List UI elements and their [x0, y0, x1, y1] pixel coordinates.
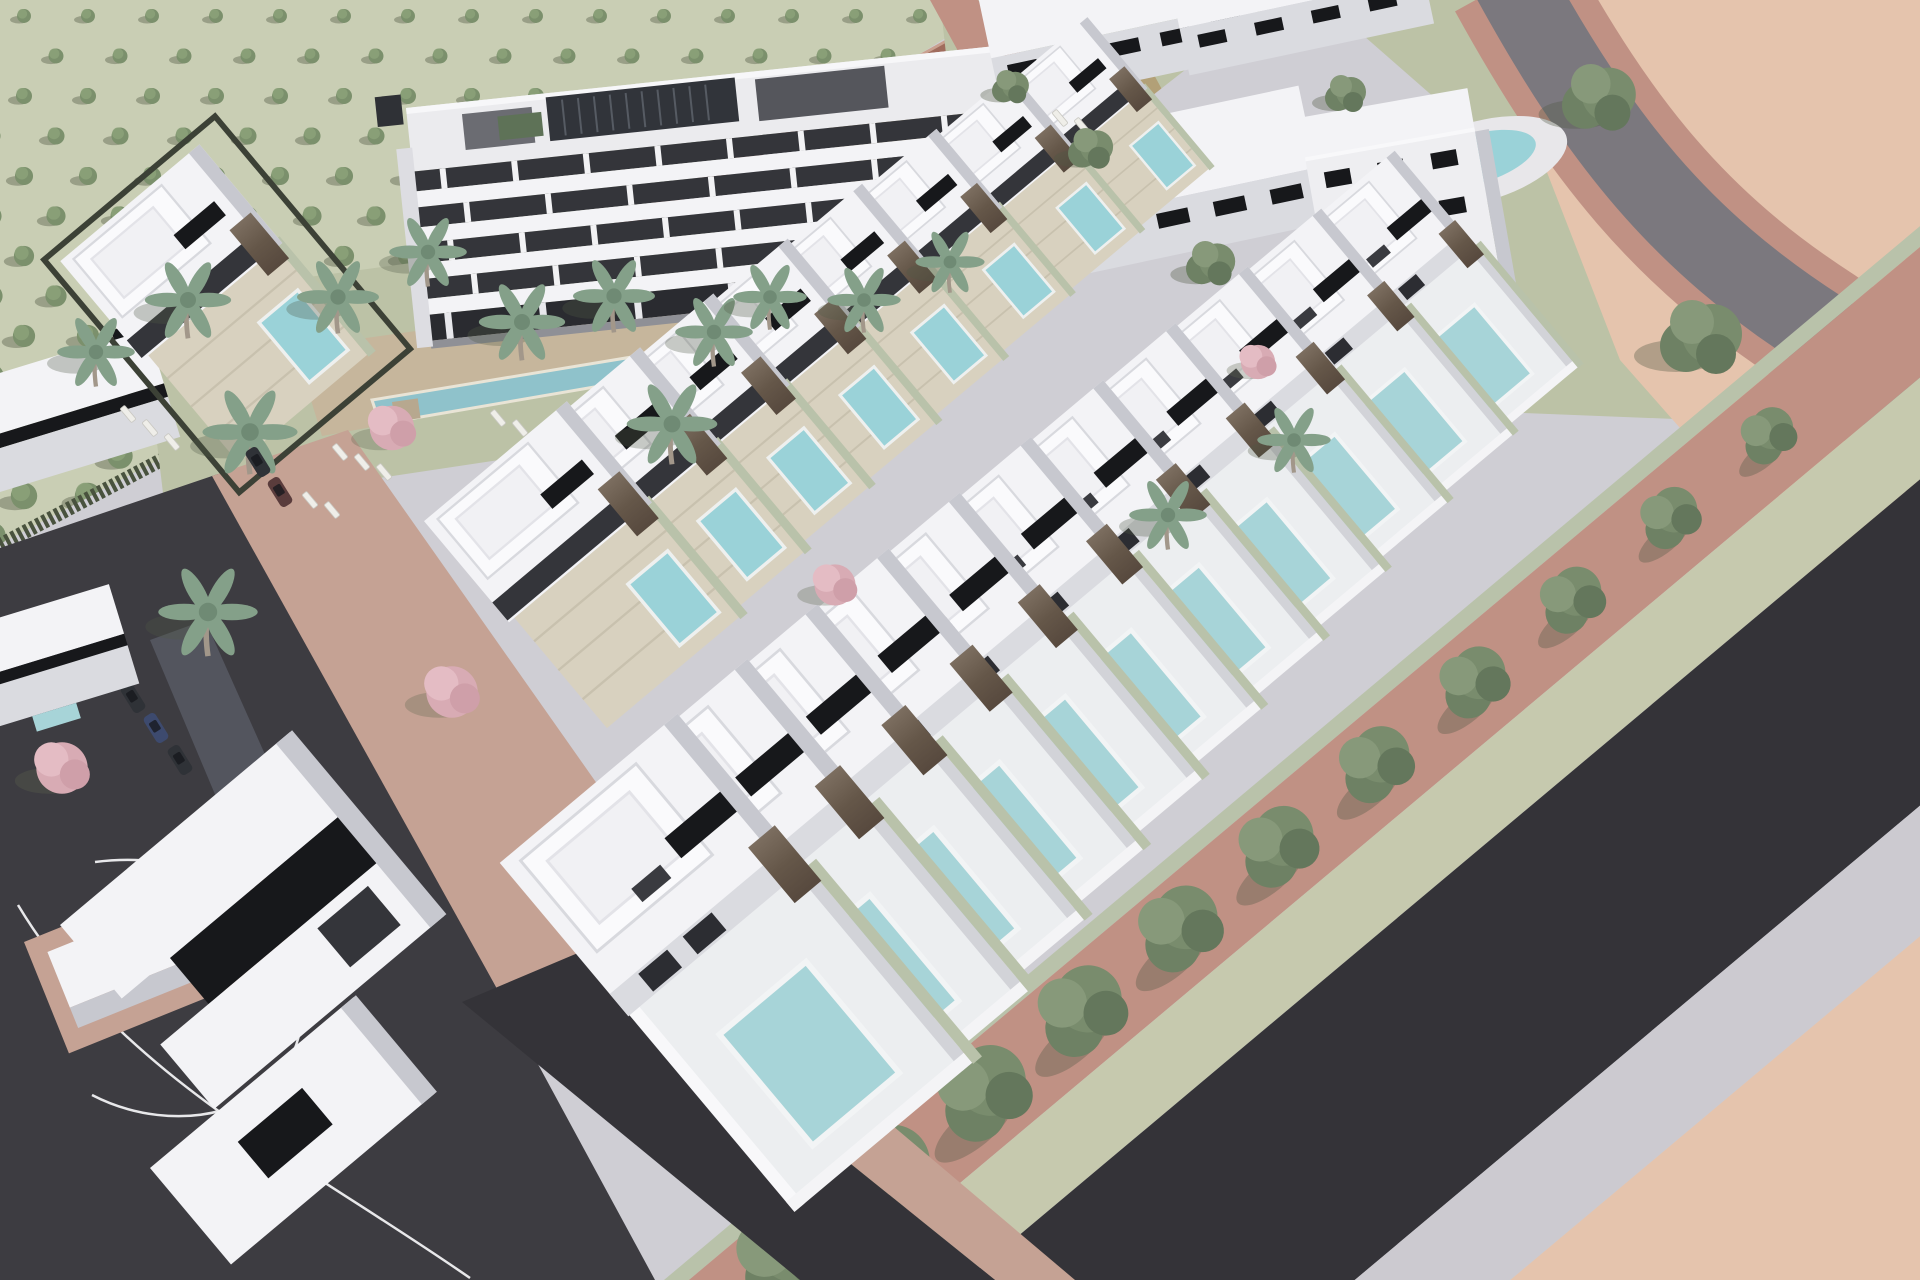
chimney	[375, 94, 404, 127]
render-canvas	[0, 0, 1920, 1280]
roof-garden	[497, 112, 543, 140]
aerial-render	[0, 0, 1920, 1280]
